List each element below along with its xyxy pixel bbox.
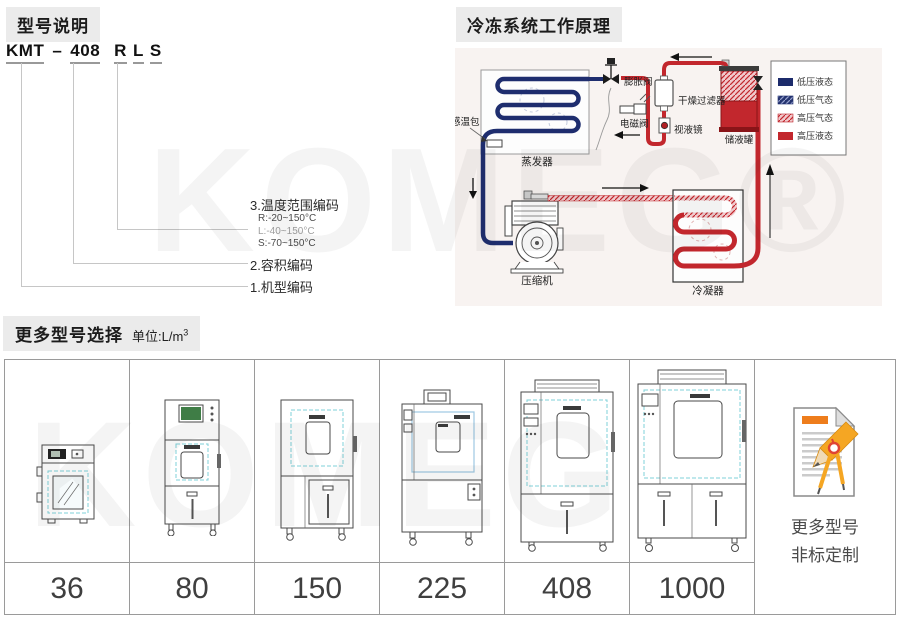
model-code: KMT–408RLS <box>6 41 162 64</box>
chamber-image-cell <box>130 360 255 562</box>
connector-line <box>117 63 118 230</box>
legend-label-lp-liquid: 低压液态 <box>797 76 833 87</box>
model-volume: 408 <box>505 562 630 614</box>
catalog-page: KOMEG® KOMEG 型号说明 KMT–408RLS 3.温度范围编码 R:… <box>0 0 900 621</box>
compressor-label: 压缩机 <box>521 274 553 287</box>
receiver <box>719 60 763 132</box>
model-code-dash: – <box>52 41 62 60</box>
model-volume: 1000 <box>630 562 755 614</box>
connector-line <box>74 263 248 264</box>
connector-line <box>118 229 248 230</box>
refrigeration-diagram-svg: 感温包 蒸发器 <box>455 48 882 306</box>
refrigeration-diagram: 感温包 蒸发器 <box>455 48 882 306</box>
evaporator-label: 蒸发器 <box>521 155 553 168</box>
chamber-drawing-150 <box>271 394 363 544</box>
models-section-heading: 更多型号选择 单位:L/m3 <box>3 316 200 351</box>
receiver-label: 储液罐 <box>725 134 754 146</box>
chamber-image-cell <box>380 360 505 562</box>
condenser-label: 冷凝器 <box>692 284 724 297</box>
annotation-temp-range: 3.温度范围编码 <box>250 195 339 214</box>
temp-option-s: S:-70~150°C <box>258 238 316 249</box>
connector-line <box>22 286 248 287</box>
model-volume: 225 <box>380 562 505 614</box>
sensor-bulb-label: 感温包 <box>455 116 480 128</box>
model-volume: 36 <box>5 562 130 614</box>
model-code-volume: 408 <box>70 41 100 64</box>
chamber-drawing-225 <box>394 386 490 548</box>
temp-option-r: R:-20~150°C <box>258 213 316 224</box>
sensor-bulb <box>487 140 502 147</box>
chamber-image-cell <box>255 360 380 562</box>
chamber-image-cell <box>5 360 130 562</box>
connector-line <box>73 63 74 264</box>
expansion-valve-label: 膨胀阀 <box>624 76 653 88</box>
diagram-section-heading: 冷冻系统工作原理 <box>456 7 622 42</box>
dry-filter <box>655 76 673 111</box>
models-heading-text: 更多型号选择 <box>15 321 123 346</box>
chamber-drawing-1000 <box>634 368 750 554</box>
custom-models-line2: 非标定制 <box>791 542 859 570</box>
sight-glass-label: 视液镜 <box>674 124 703 136</box>
model-volume: 150 <box>255 562 380 614</box>
model-code-prefix: KMT <box>6 41 44 64</box>
chamber-drawing-408 <box>515 376 619 552</box>
model-code-letter-r: R <box>114 41 127 64</box>
legend-label-lp-gas: 低压气态 <box>797 94 833 105</box>
connector-line <box>21 63 22 287</box>
annotation-machine-code: 1.机型编码 <box>250 277 313 296</box>
temp-option-l: L:-40~150°C <box>258 226 315 237</box>
model-volume: 80 <box>130 562 255 614</box>
diagram-legend: 低压液态 低压气态 高压气态 高压液态 <box>771 61 846 155</box>
custom-models-line1: 更多型号 <box>791 514 859 542</box>
custom-models-cell: 更多型号 非标定制 <box>755 360 895 614</box>
annotation-volume-code: 2.容积编码 <box>250 255 313 274</box>
model-code-letter-s: S <box>150 41 162 64</box>
legend-label-hp-gas: 高压气态 <box>797 112 833 123</box>
legend-label-hp-liquid: 高压液态 <box>797 130 833 141</box>
chamber-drawing-36 <box>32 431 102 526</box>
model-code-letter-l: L <box>133 41 144 64</box>
model-section-heading: 型号说明 <box>6 7 100 42</box>
unit-label: 单位:L/m3 <box>132 326 188 345</box>
discharge-pipe <box>548 196 674 202</box>
models-table: 更多型号 非标定制 36 80 150 225 408 1000 <box>4 359 896 615</box>
custom-models-text: 更多型号 非标定制 <box>791 514 859 570</box>
solenoid-valve-label: 电磁阀 <box>620 118 649 130</box>
sight-glass <box>659 118 670 133</box>
custom-design-icon <box>780 402 870 502</box>
chamber-image-cell <box>630 360 755 562</box>
chamber-image-cell <box>505 360 630 562</box>
chamber-drawing-80 <box>151 394 233 536</box>
dry-filter-label: 干燥过滤器 <box>678 95 726 107</box>
